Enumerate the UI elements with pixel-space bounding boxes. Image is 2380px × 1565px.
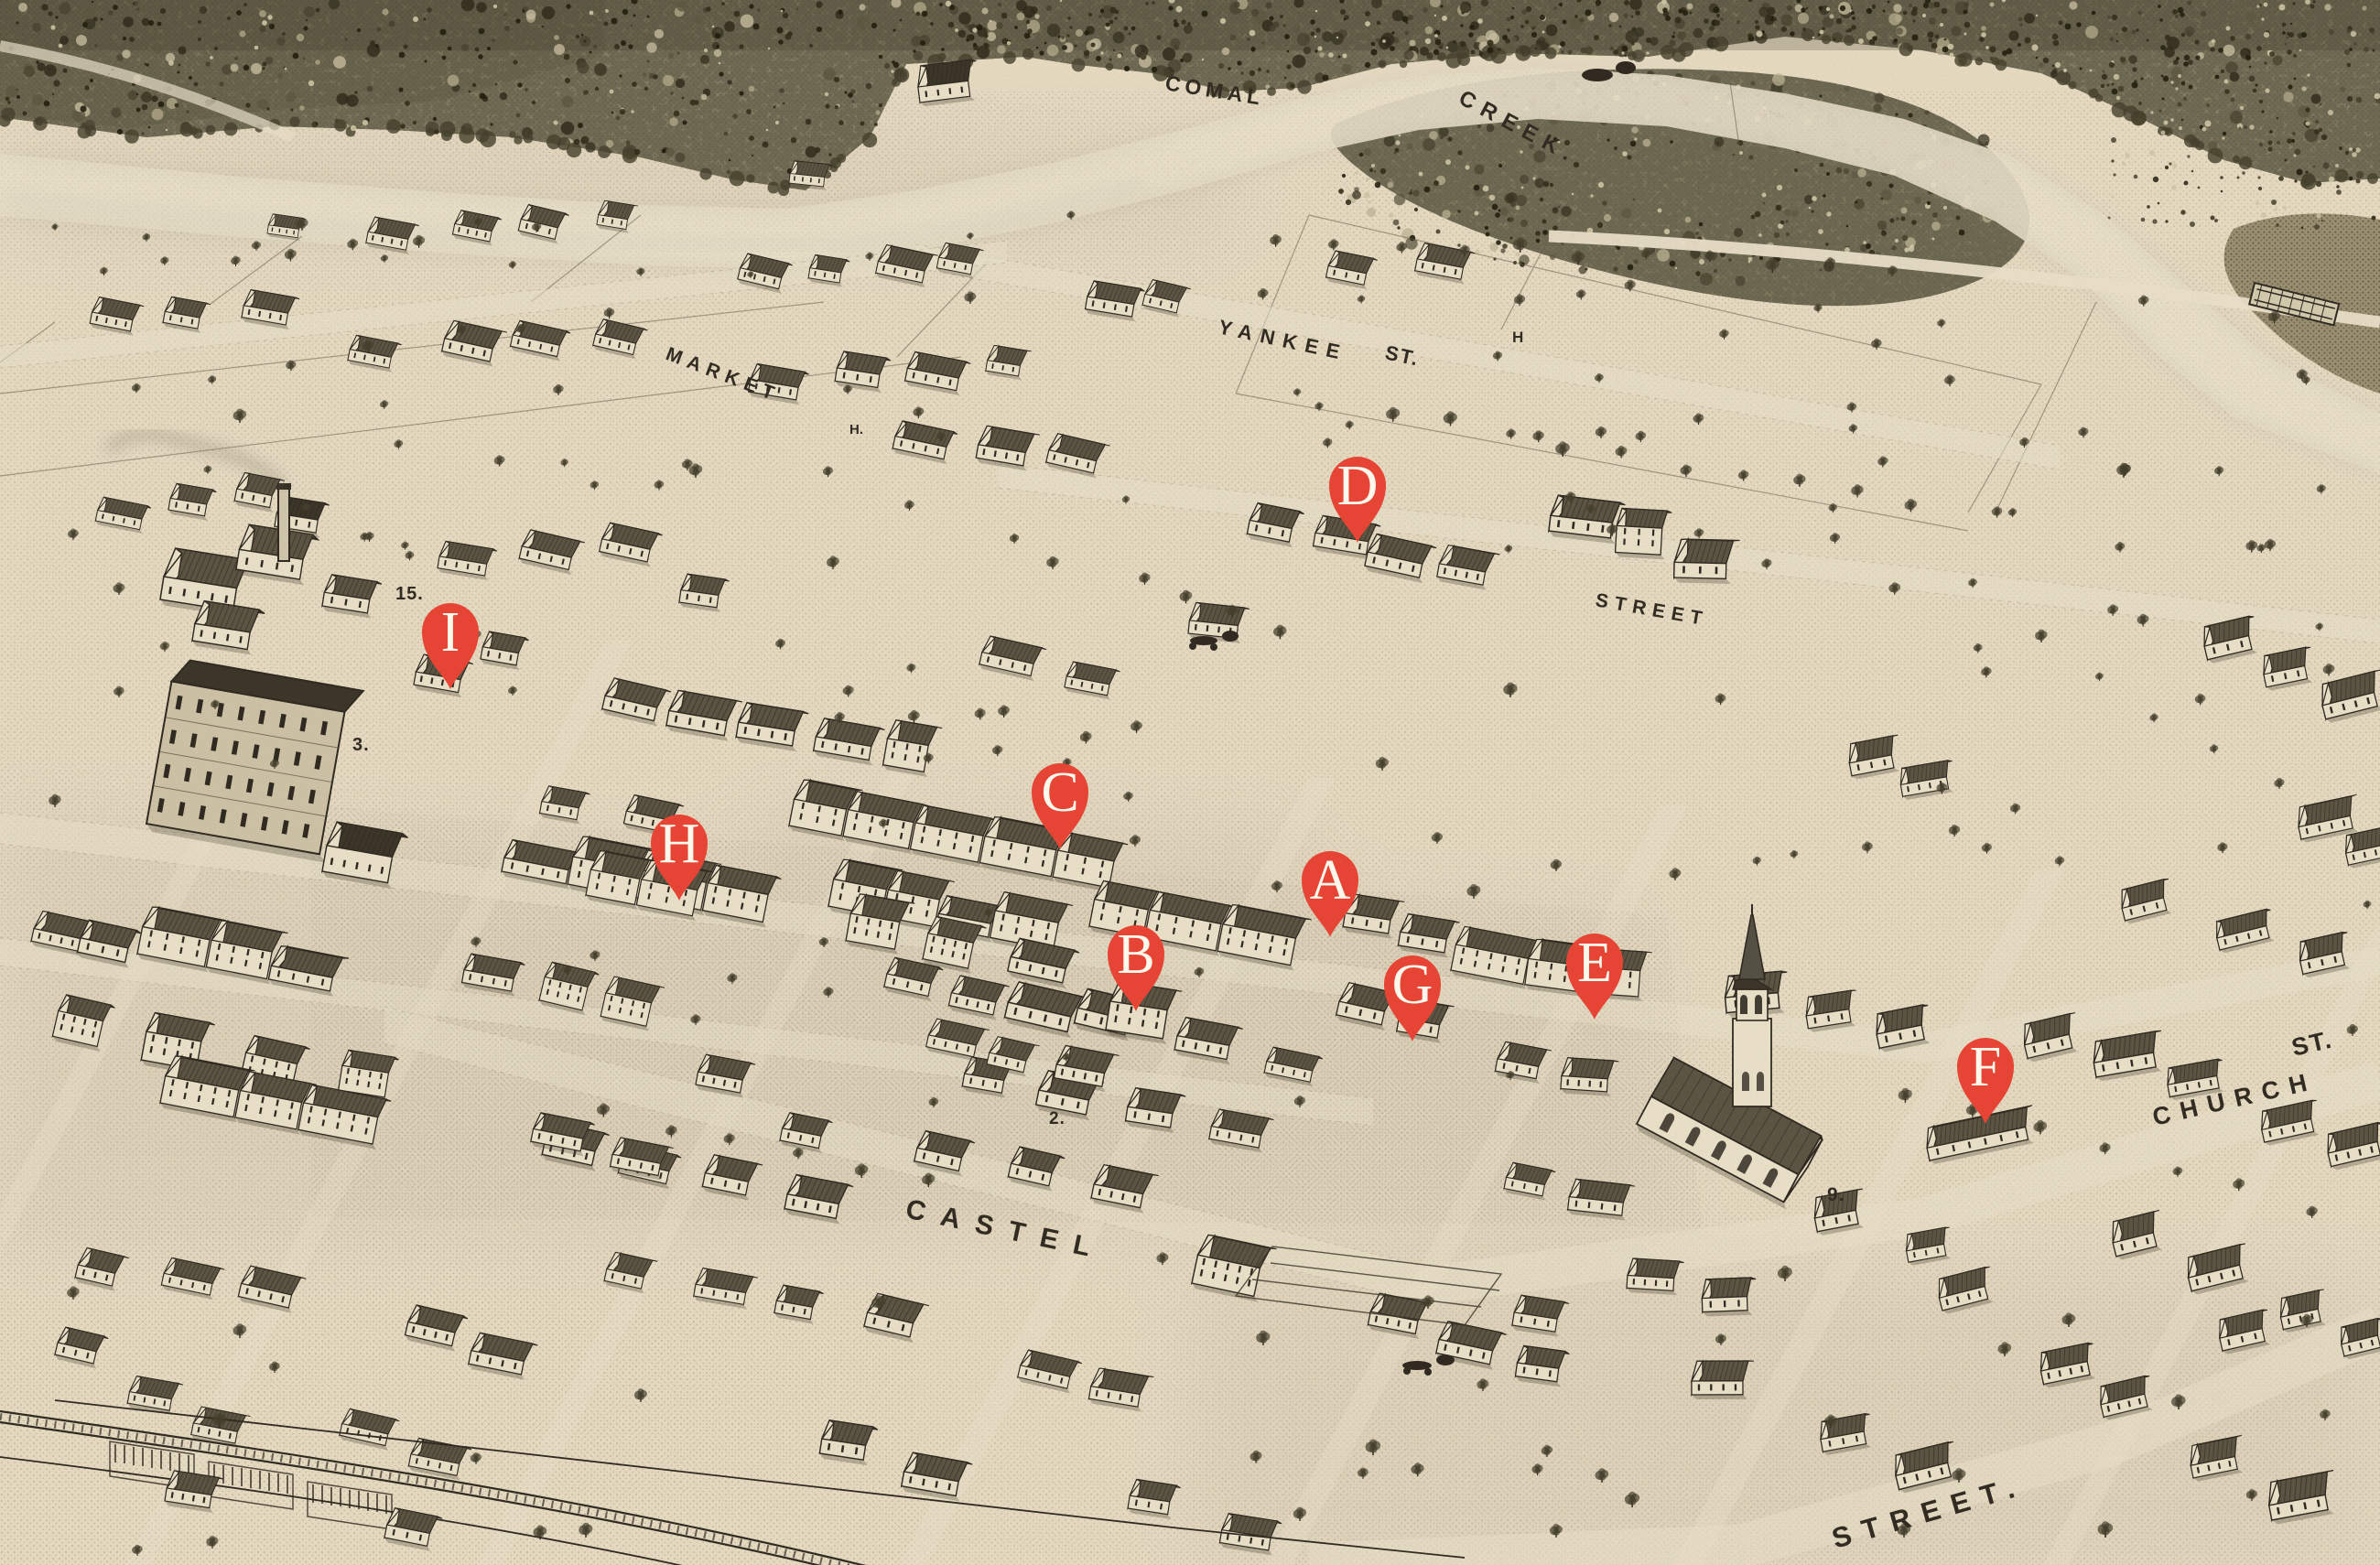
svg-text:D: D — [1337, 455, 1379, 517]
svg-text:H: H — [659, 813, 700, 875]
svg-text:F: F — [1970, 1036, 2001, 1098]
svg-text:E: E — [1577, 932, 1612, 994]
svg-text:A: A — [1310, 849, 1351, 912]
svg-text:I: I — [441, 601, 460, 664]
svg-text:C: C — [1041, 761, 1078, 824]
svg-text:G: G — [1392, 954, 1433, 1016]
svg-text:B: B — [1117, 923, 1154, 986]
